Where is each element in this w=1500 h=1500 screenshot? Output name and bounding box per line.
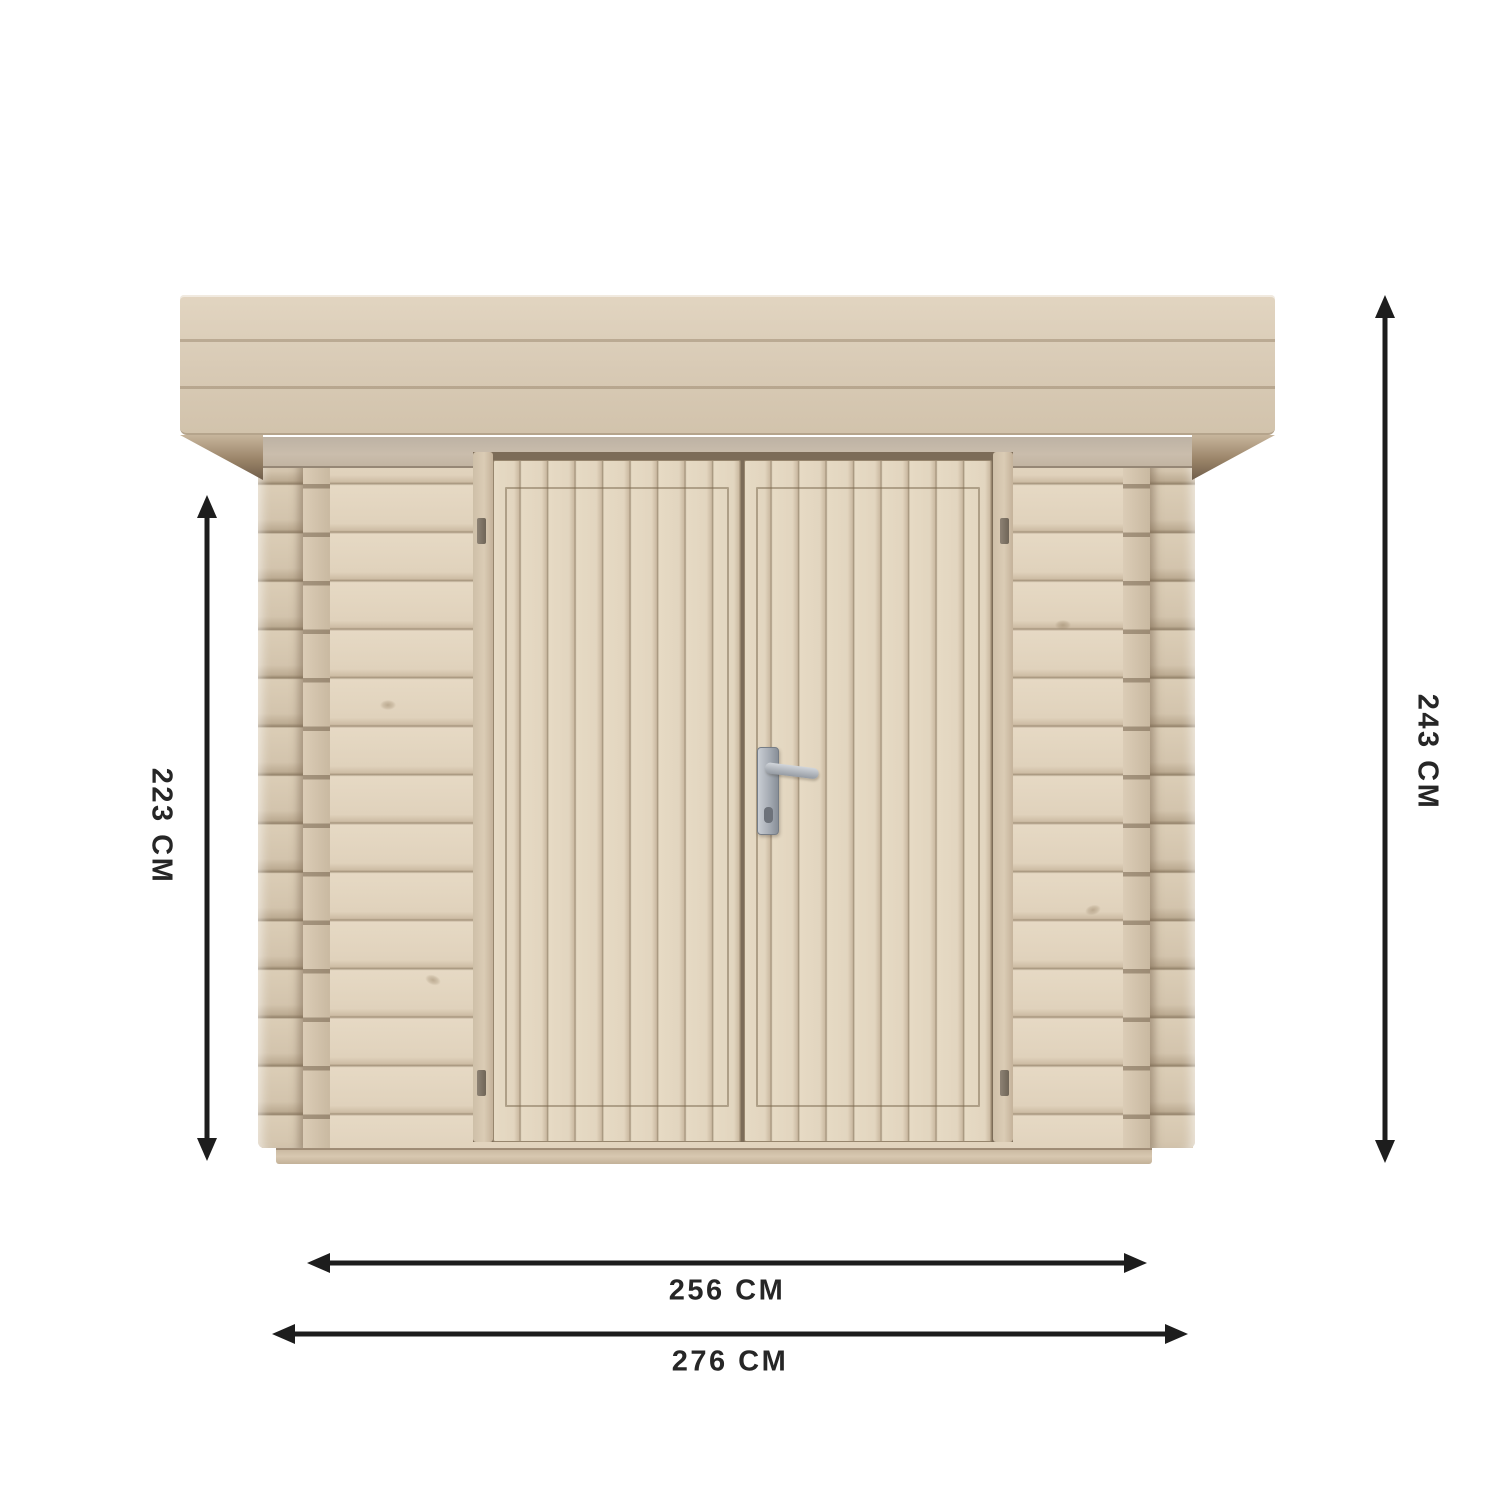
arrowhead-down-icon xyxy=(1375,1140,1395,1163)
arrowhead-up-icon xyxy=(197,495,217,518)
dimension-line xyxy=(1383,310,1388,1148)
eave-soffit-left xyxy=(180,435,263,480)
door-hinge xyxy=(1000,518,1009,544)
arrowhead-up-icon xyxy=(1375,295,1395,318)
corner-logs-right xyxy=(1150,437,1195,1148)
door-jamb-left xyxy=(473,452,493,1142)
inner-width-dimension-arrow xyxy=(307,1253,1147,1273)
base-board xyxy=(276,1148,1152,1164)
corner-trim-right xyxy=(1123,440,1150,1148)
arrowhead-right-icon xyxy=(1124,1253,1147,1273)
arrowhead-left-icon xyxy=(272,1324,295,1344)
corner-logs-left xyxy=(258,437,303,1148)
wood-knot xyxy=(380,700,396,710)
door-hinge xyxy=(477,1070,486,1096)
double-door xyxy=(473,452,1013,1142)
eave-soffit-right xyxy=(1192,435,1275,480)
overall-width-label: 276 CM xyxy=(672,1346,789,1379)
door-leaf-left xyxy=(493,460,741,1142)
dimension-line xyxy=(287,1332,1173,1337)
keyhole xyxy=(764,807,773,823)
shed-dimension-diagram: 223 CM 243 CM 256 CM 276 CM xyxy=(0,0,1500,1500)
arrowhead-down-icon xyxy=(197,1138,217,1161)
door-jamb-right xyxy=(993,452,1013,1142)
corner-trim-left xyxy=(303,440,330,1148)
wood-knot xyxy=(1055,620,1071,630)
door-hinge xyxy=(1000,1070,1009,1096)
door-leaf-right xyxy=(744,460,992,1142)
wall-height-label: 223 CM xyxy=(145,768,178,885)
dimension-line xyxy=(205,510,210,1146)
arrowhead-left-icon xyxy=(307,1253,330,1273)
door-hinge xyxy=(477,518,486,544)
arrowhead-right-icon xyxy=(1165,1324,1188,1344)
wall-height-dimension-arrow xyxy=(197,495,217,1161)
overall-height-label: 243 CM xyxy=(1411,694,1444,811)
roof-fascia xyxy=(180,295,1275,435)
inner-width-label: 256 CM xyxy=(669,1275,786,1308)
overall-width-dimension-arrow xyxy=(272,1324,1188,1344)
dimension-line xyxy=(322,1261,1132,1266)
overall-height-dimension-arrow xyxy=(1375,295,1395,1163)
